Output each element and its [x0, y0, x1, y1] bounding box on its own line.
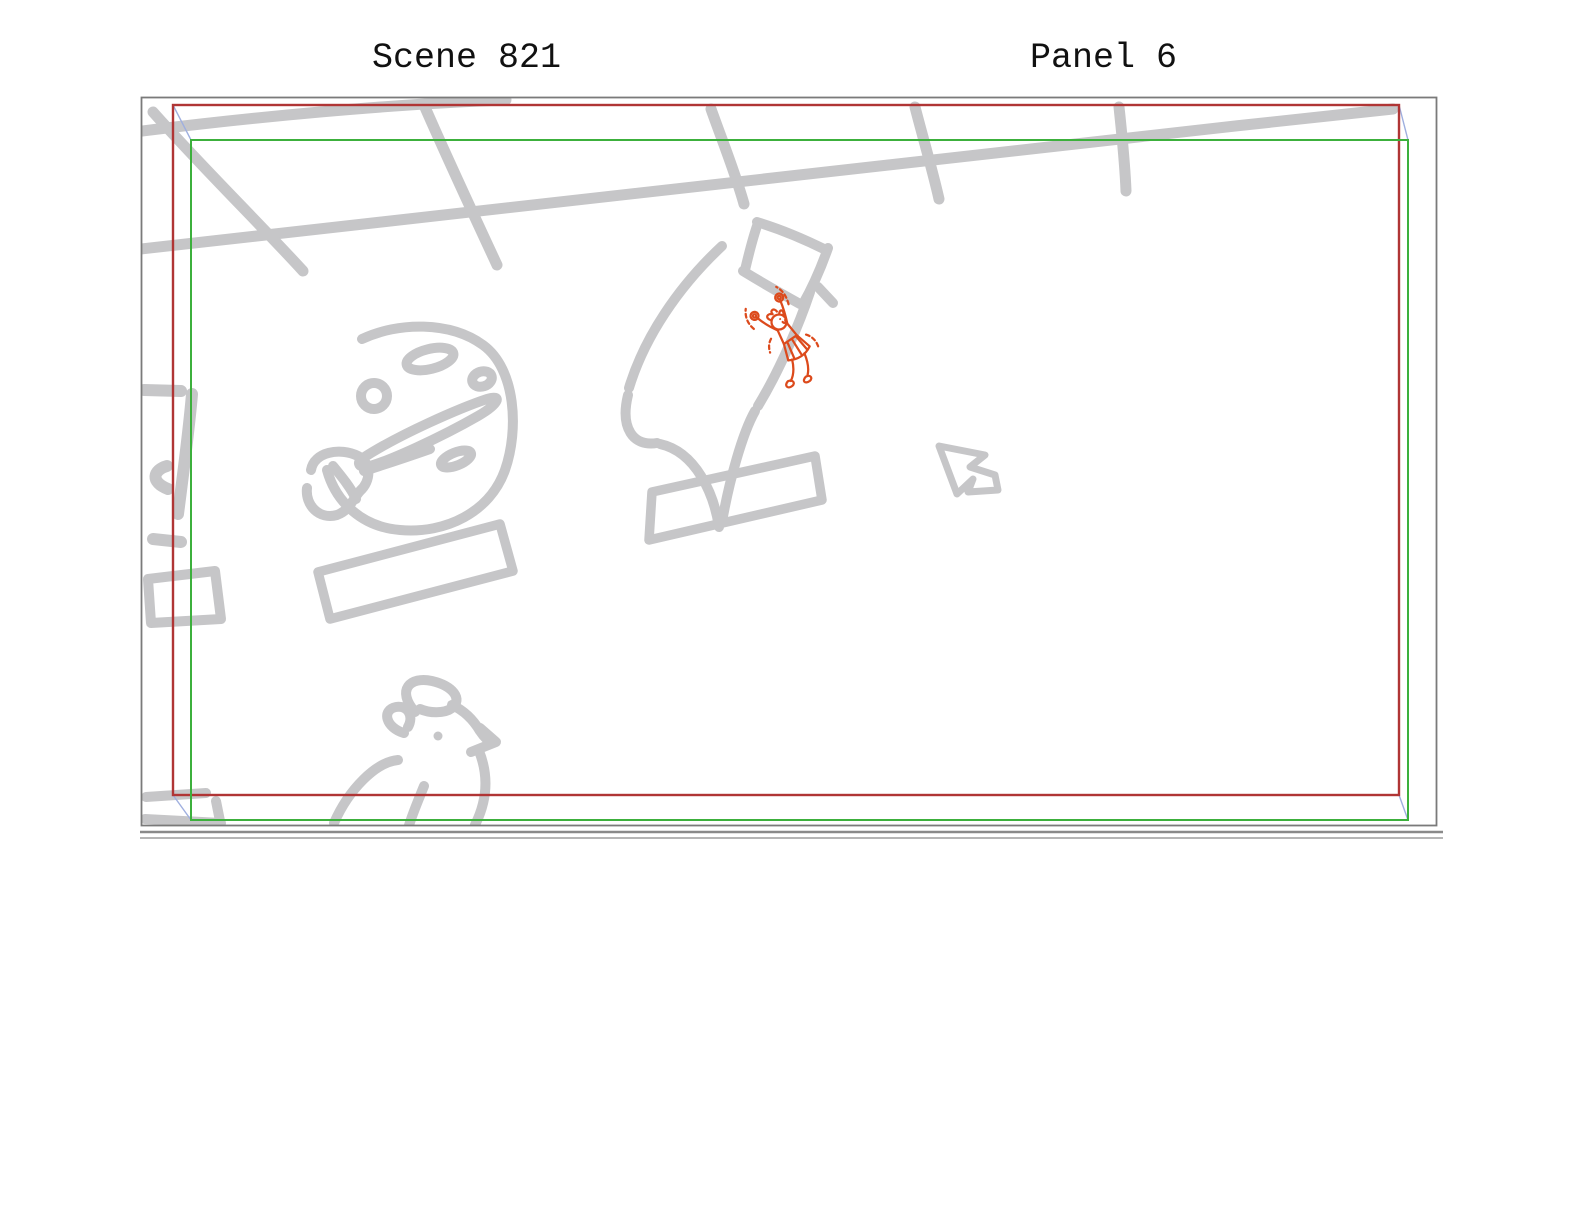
camera-start-frame: [173, 105, 1399, 795]
perspective-grid-sketch: [141, 100, 1393, 271]
palette-label-bar-sketch: [318, 524, 513, 619]
bottom-rule: [140, 832, 1443, 838]
left-edge-marks-sketch: [144, 390, 221, 623]
chicken-sketch: [334, 680, 496, 829]
palette-sketch: [307, 327, 513, 531]
storyboard-page: Scene 821 Panel 6: [0, 0, 1584, 1224]
cursor-arrow-sketch: [939, 446, 998, 494]
capsule-with-cap-sketch: [626, 222, 833, 527]
drawing-canvas[interactable]: [0, 0, 1584, 1224]
